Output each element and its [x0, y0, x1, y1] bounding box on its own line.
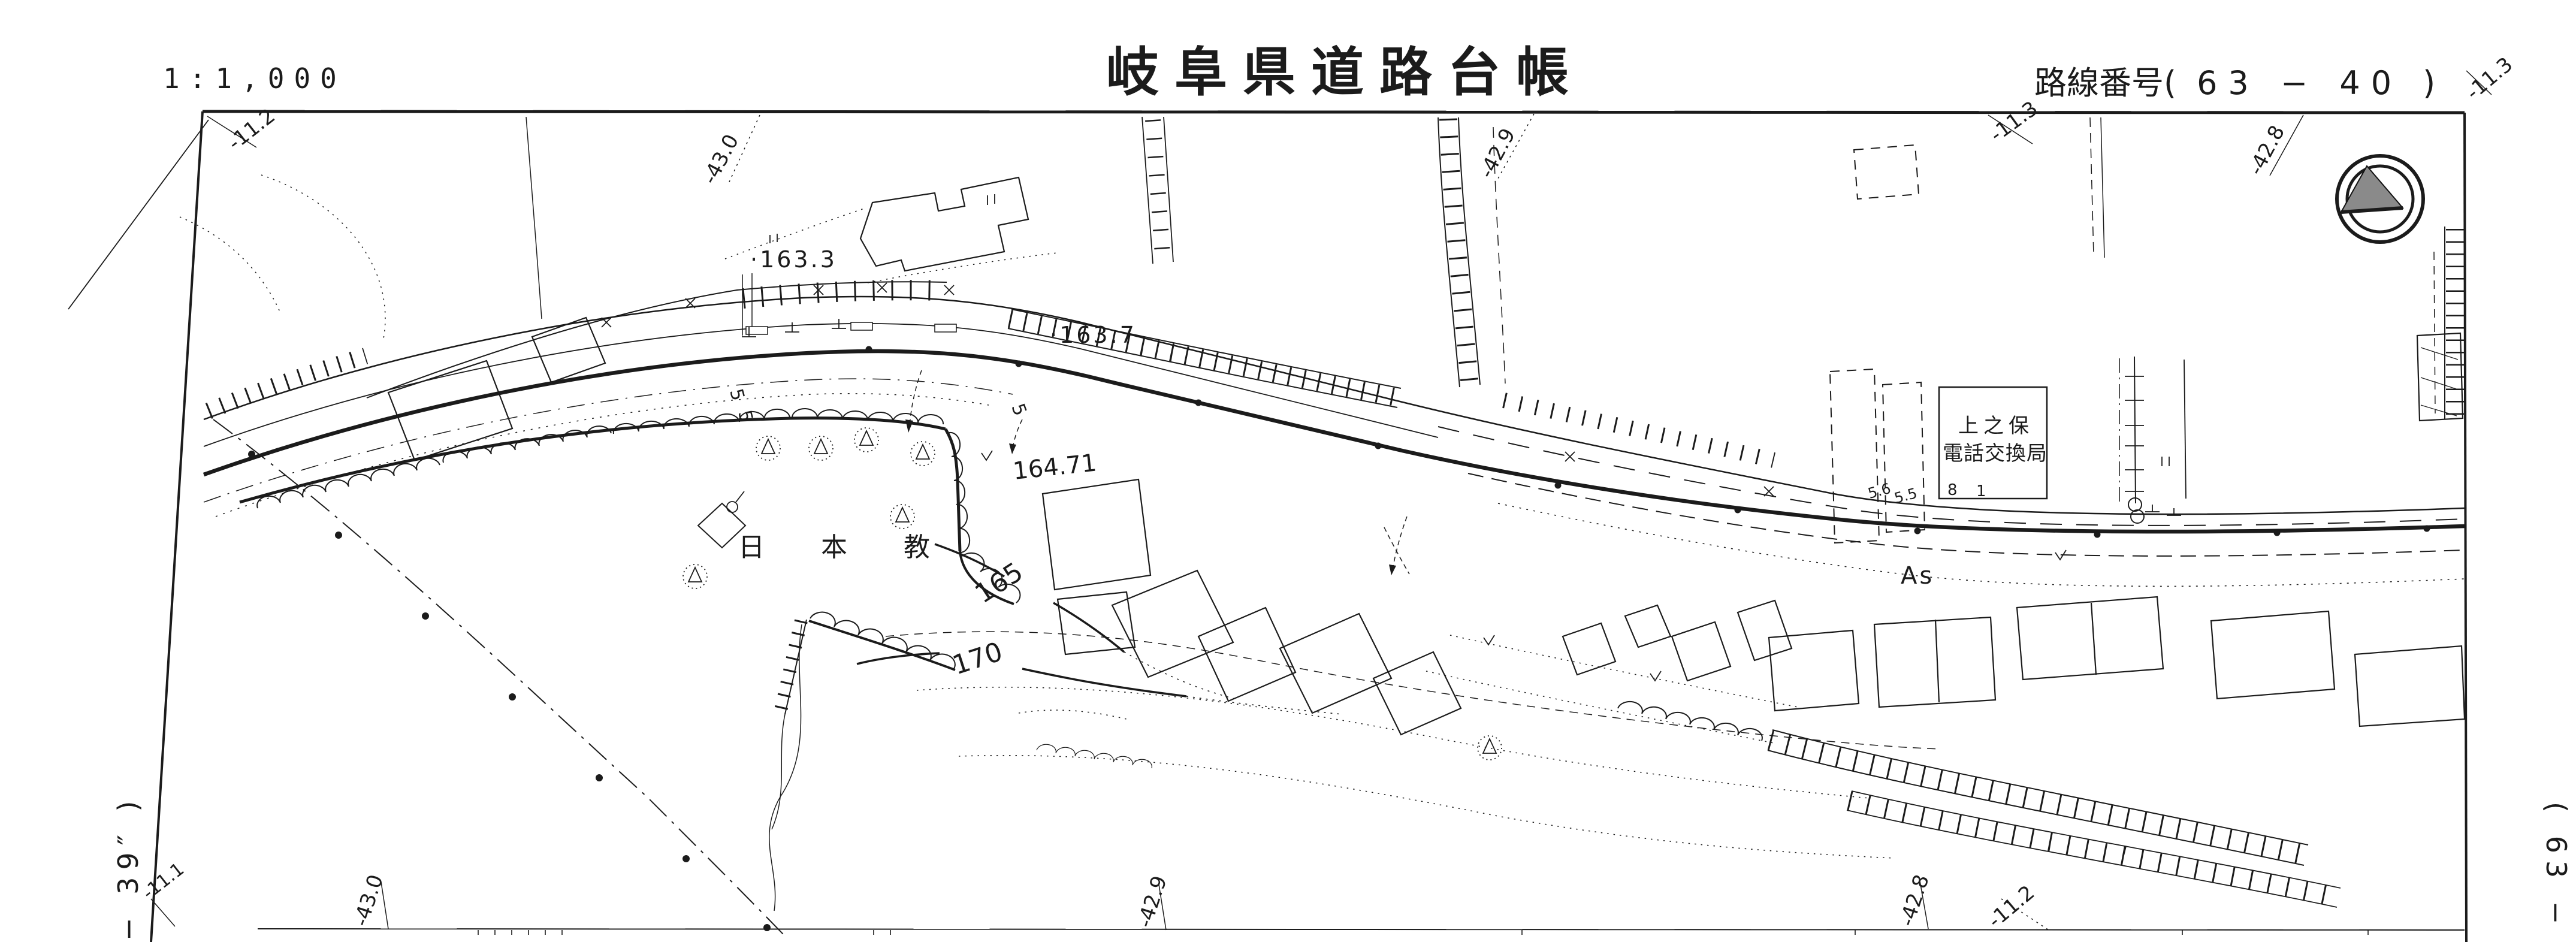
sheet-ref-right: ( 63 − [2540, 802, 2572, 931]
spot-elevation-163-7: ·163.7 [1050, 322, 1137, 348]
direction-arrows [905, 370, 1409, 575]
map-text-labels: ·163.3 ·163.7 164.71 165 170 日 本 教 上之保 電… [725, 246, 2047, 681]
map-frame [151, 111, 2466, 942]
contour-label-165: 165 [970, 557, 1028, 610]
spot-elevation-163-3: ·163.3 [750, 246, 837, 273]
coord-label-bottom-left: -11.1 [138, 859, 188, 904]
coord-label-top-2: -42.9 [1475, 125, 1521, 182]
pavement-label-as: As [1901, 562, 1934, 590]
survey-points [866, 346, 2430, 538]
sheet-ref-left: − 39″ ) [112, 794, 144, 941]
utility-poles [602, 194, 2186, 523]
spot-elevation-164-71: 164.71 [1011, 449, 1098, 485]
road-lines [204, 117, 2465, 586]
width-label-5c: 5 [1007, 401, 1030, 419]
boundary-line [213, 346, 2430, 935]
width-label-5a: 5 [725, 387, 748, 403]
coord-label-top-1: -43.0 [698, 131, 744, 188]
contour-lines [68, 120, 2066, 911]
exchange-label-line1: 上之保 [1958, 414, 2034, 438]
coord-label-bottom-1: -43.0 [349, 872, 388, 929]
road-map-drawing: ·163.3 ·163.7 164.71 165 170 日 本 教 上之保 電… [0, 0, 2576, 942]
exchange-label-line2: 電話交換局 [1943, 442, 2047, 466]
retaining-walls [240, 409, 2341, 907]
coordinate-labels: -11.2 -43.0 -42.9 -11.3 -42.8 -11.3 -11.… [138, 53, 2517, 933]
coord-label-top-3: -11.3 [1986, 96, 2043, 147]
coord-label-bottom-4: -11.2 [1983, 881, 2039, 933]
contour-label-170: 170 [949, 636, 1007, 681]
coord-label-top-right: -11.3 [2462, 53, 2517, 105]
place-label-nihonkyo: 日 本 教 [738, 532, 954, 563]
road-ledger-sheet: 1:1,000 岐阜県道路台帳 路線番号(63 − 40) [0, 0, 2576, 942]
width-label-5b: 5 [733, 408, 757, 425]
number-label-1: 1 [1976, 482, 1986, 500]
frame-tick-marks [478, 930, 2368, 935]
tree-symbols [683, 428, 1502, 760]
sheet-edge-references: − 39″ ) ( 63 − [112, 794, 2572, 941]
number-label-8: 8 [1947, 481, 1958, 499]
coord-label-bottom-2: -42.9 [1133, 873, 1172, 931]
width-label-5-5: 5.5 [1892, 485, 1919, 507]
coord-label-bottom-3: -42.8 [1895, 872, 1934, 929]
north-arrow-icon [2337, 156, 2423, 242]
coord-label-top-4: -42.8 [2244, 122, 2290, 179]
width-label-5-6: 5.6 [1866, 480, 1892, 502]
